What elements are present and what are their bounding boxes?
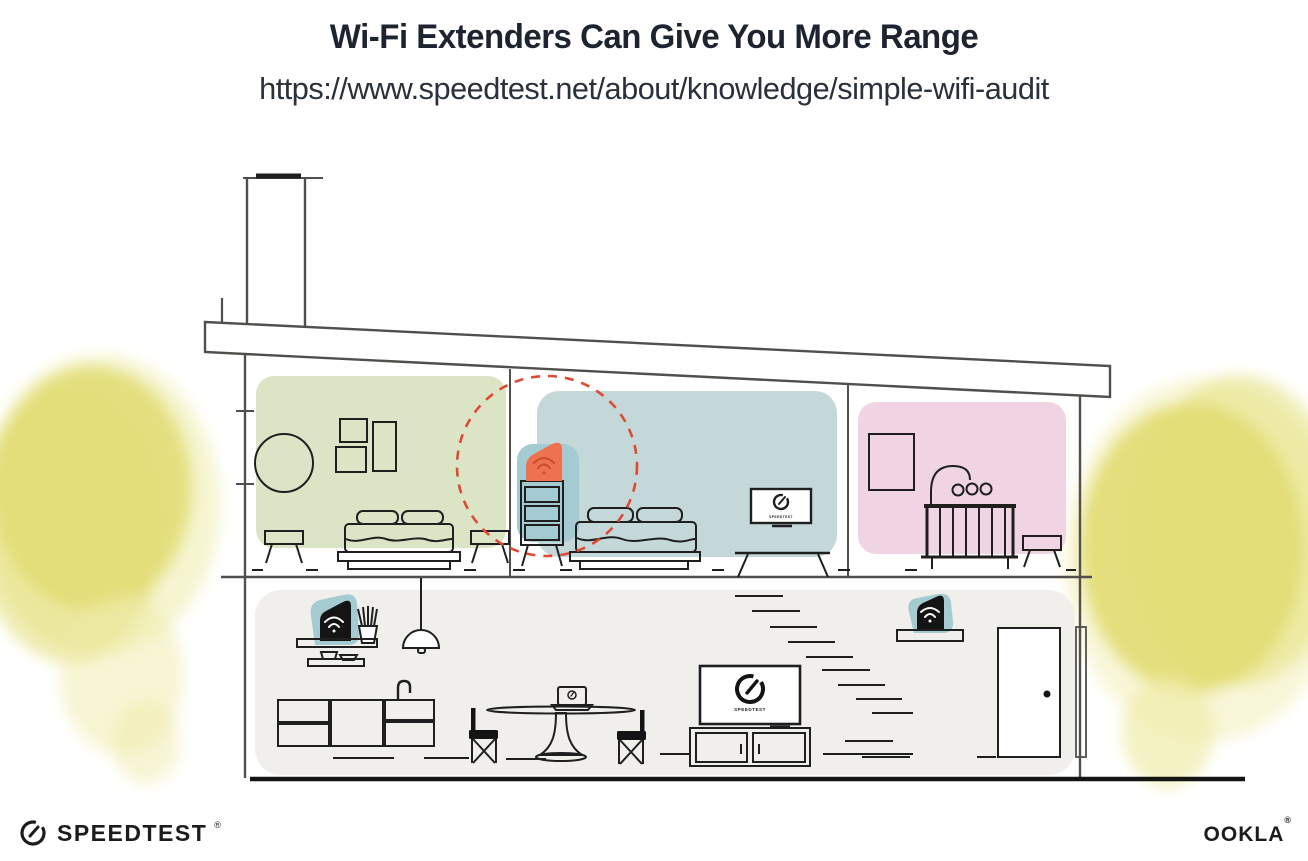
- speedtest-wordmark: SPEEDTEST: [57, 820, 207, 847]
- door: [998, 628, 1060, 757]
- ookla-wordmark: OOKLA: [1204, 823, 1285, 846]
- infographic-canvas: Wi-Fi Extenders Can Give You More Range …: [0, 0, 1308, 861]
- footer: SPEEDTEST® OOKLA®: [0, 811, 1308, 851]
- right-bush: [1065, 375, 1308, 787]
- house-cross-section-illustration: SPEEDTEST: [0, 0, 1308, 861]
- speedtest-trademark: ®: [214, 820, 221, 830]
- ookla-trademark: ®: [1284, 815, 1292, 825]
- gauge-icon: [18, 817, 50, 849]
- ookla-logo: OOKLA®: [1204, 823, 1292, 847]
- left-bush: [0, 355, 220, 784]
- blue-bedroom-background: [537, 391, 837, 557]
- door-knob: [1044, 691, 1051, 698]
- speedtest-logo: SPEEDTEST®: [18, 817, 221, 849]
- green-bedroom-background: [256, 376, 506, 548]
- tv-screen-label: SPEEDTEST: [769, 515, 793, 519]
- tv-living-room: SPEEDTEST: [700, 666, 800, 727]
- pink-nursery-background: [858, 402, 1066, 554]
- chimney: [243, 176, 323, 328]
- tv-screen-label: SPEEDTEST: [734, 707, 766, 712]
